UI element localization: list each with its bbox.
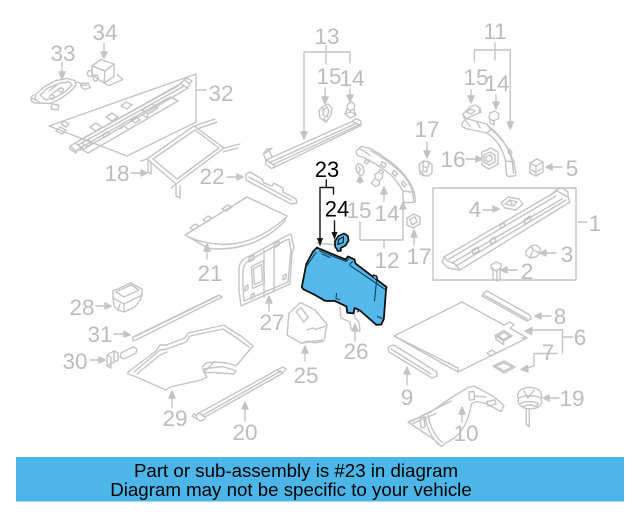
svg-text:10: 10 [453, 421, 478, 446]
svg-text:3: 3 [561, 242, 574, 267]
svg-text:31: 31 [87, 322, 112, 347]
svg-text:12: 12 [374, 248, 399, 273]
svg-text:1: 1 [589, 211, 602, 236]
svg-text:14: 14 [374, 201, 399, 226]
svg-text:21: 21 [197, 261, 222, 286]
svg-text:14: 14 [484, 71, 509, 96]
svg-text:6: 6 [574, 325, 587, 350]
svg-text:Part or sub-assembly is #23 in: Part or sub-assembly is #23 in diagram [134, 460, 458, 481]
svg-text:17: 17 [406, 244, 431, 269]
svg-text:28: 28 [69, 295, 94, 320]
svg-text:13: 13 [314, 24, 339, 49]
svg-text:15: 15 [346, 198, 371, 223]
svg-text:24: 24 [325, 197, 349, 222]
svg-text:7: 7 [542, 340, 555, 365]
svg-text:11: 11 [483, 19, 506, 44]
svg-text:Diagram may not be specific to: Diagram may not be specific to your vehi… [110, 479, 471, 500]
svg-text:23: 23 [315, 157, 339, 182]
svg-text:17: 17 [414, 117, 439, 142]
svg-text:5: 5 [566, 156, 579, 181]
svg-text:8: 8 [554, 304, 567, 329]
svg-text:25: 25 [293, 363, 318, 388]
svg-text:29: 29 [162, 406, 187, 431]
svg-text:20: 20 [232, 420, 257, 445]
svg-text:22: 22 [199, 164, 224, 189]
svg-text:14: 14 [339, 66, 364, 91]
svg-text:16: 16 [440, 147, 465, 172]
svg-text:26: 26 [343, 339, 368, 364]
svg-text:18: 18 [104, 161, 129, 186]
svg-text:19: 19 [559, 386, 584, 411]
svg-text:30: 30 [62, 349, 87, 374]
svg-text:27: 27 [259, 310, 284, 335]
svg-text:34: 34 [92, 20, 117, 45]
svg-text:2: 2 [521, 259, 534, 284]
svg-text:4: 4 [469, 197, 482, 222]
svg-text:33: 33 [50, 41, 75, 66]
svg-text:9: 9 [401, 385, 414, 410]
svg-text:15: 15 [316, 64, 341, 89]
svg-text:32: 32 [208, 81, 233, 106]
